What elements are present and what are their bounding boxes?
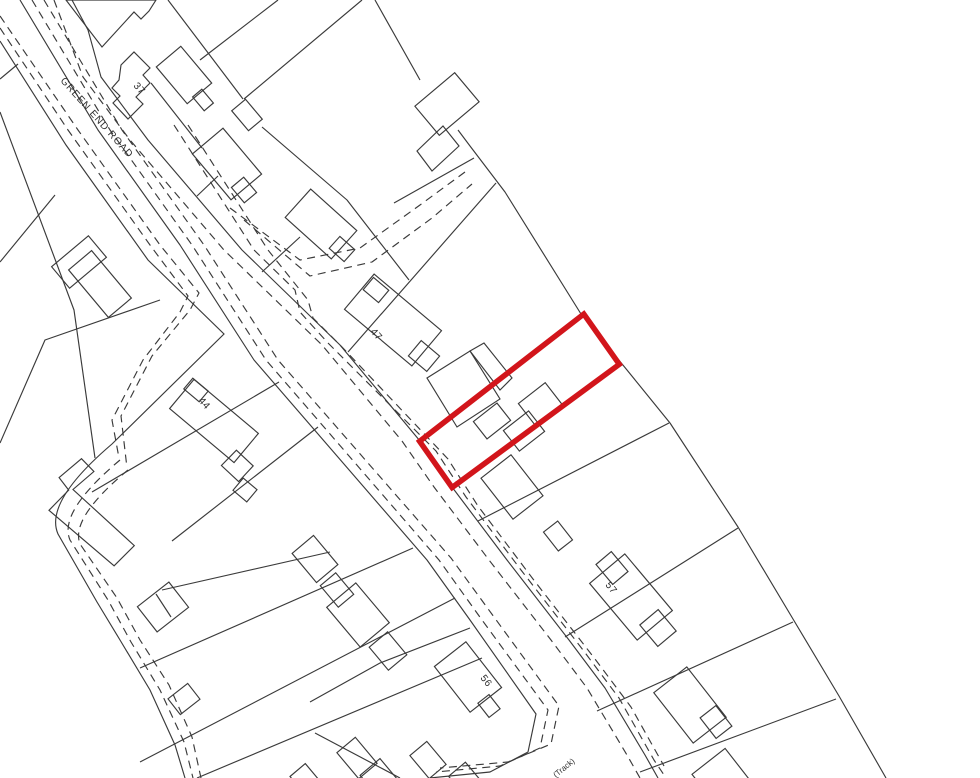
svg-text:56: 56 <box>478 673 494 689</box>
svg-text:37: 37 <box>131 81 147 97</box>
svg-text:44: 44 <box>196 396 212 412</box>
svg-text:(Track): (Track) <box>552 756 577 778</box>
svg-text:57: 57 <box>603 580 619 596</box>
